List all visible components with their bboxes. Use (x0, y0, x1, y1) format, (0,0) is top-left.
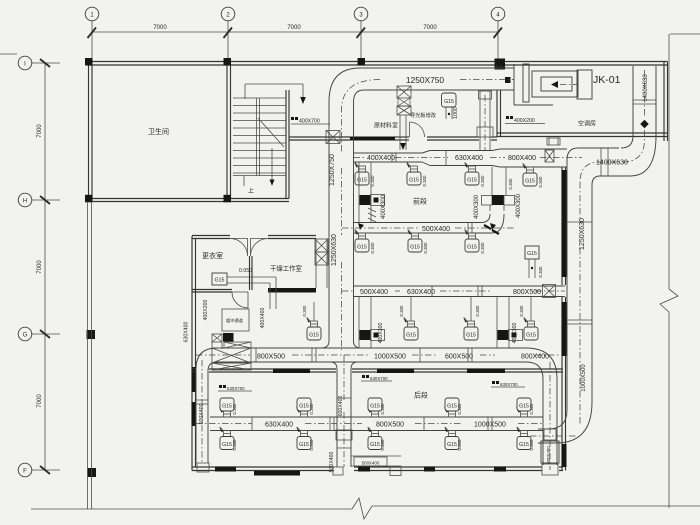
svg-text:0.300: 0.300 (370, 242, 375, 254)
svg-text:800X400: 800X400 (521, 354, 549, 361)
svg-text:后段: 后段 (414, 391, 428, 400)
svg-text:400X300: 400X300 (381, 194, 387, 219)
svg-text:0.300: 0.300 (302, 305, 307, 317)
svg-text:7000: 7000 (287, 25, 301, 31)
svg-text:1000X500: 1000X500 (474, 422, 506, 429)
svg-text:0.050: 0.050 (239, 268, 252, 274)
svg-text:400X300: 400X300 (474, 194, 480, 219)
svg-text:1000: 1000 (453, 107, 459, 119)
svg-text:500X400: 500X400 (546, 446, 551, 464)
svg-text:7000: 7000 (423, 25, 437, 31)
svg-text:630X400: 630X400 (407, 289, 435, 296)
svg-text:630X400: 630X400 (455, 155, 483, 162)
svg-text:500X400: 500X400 (360, 289, 388, 296)
svg-text:630X700: 630X700 (370, 376, 388, 381)
svg-text:7000: 7000 (37, 260, 43, 274)
svg-text:0.300: 0.300 (480, 242, 485, 254)
svg-text:0.300: 0.300 (423, 242, 428, 254)
svg-text:0.300: 0.300 (480, 175, 485, 187)
svg-text:7000: 7000 (37, 124, 43, 138)
svg-text:0.300: 0.300 (475, 305, 480, 317)
svg-text:0.300: 0.300 (232, 439, 237, 451)
svg-text:0.300: 0.300 (457, 403, 462, 415)
svg-text:JK-01: JK-01 (593, 74, 621, 86)
svg-text:400X300: 400X300 (516, 193, 522, 218)
svg-text:0.300: 0.300 (380, 403, 385, 415)
svg-text:0.300: 0.300 (519, 305, 524, 317)
svg-text:630X400: 630X400 (184, 322, 190, 343)
svg-text:1400X630: 1400X630 (596, 160, 628, 167)
svg-text:630X400: 630X400 (265, 422, 293, 429)
svg-text:800X500: 800X500 (376, 422, 404, 429)
svg-text:500X400: 500X400 (199, 404, 205, 425)
svg-text:G15: G15 (215, 278, 225, 284)
svg-text:更衣室: 更衣室 (202, 251, 223, 260)
svg-text:F: F (23, 469, 27, 475)
svg-text:缓冲通道: 缓冲通道 (226, 317, 244, 324)
svg-text:400X400: 400X400 (260, 308, 266, 329)
svg-text:7000: 7000 (37, 394, 43, 408)
svg-text:导光板增改: 导光板增改 (410, 111, 437, 119)
svg-text:0.300: 0.300 (232, 403, 237, 415)
svg-text:G15: G15 (444, 99, 454, 105)
svg-text:前段: 前段 (413, 197, 427, 206)
svg-text:0.300: 0.300 (508, 178, 513, 190)
svg-text:G15: G15 (527, 251, 537, 257)
svg-text:1000X500: 1000X500 (374, 354, 406, 361)
svg-text:400X300: 400X300 (512, 323, 518, 344)
svg-text:400X200: 400X200 (203, 300, 209, 321)
svg-text:H: H (23, 199, 27, 205)
svg-text:0.300: 0.300 (309, 403, 314, 415)
svg-text:800X500: 800X500 (257, 354, 285, 361)
svg-text:0.300: 0.300 (457, 439, 462, 451)
svg-text:1400X630: 1400X630 (643, 74, 649, 102)
svg-text:1000X500: 1000X500 (581, 364, 587, 392)
svg-text:500X400: 500X400 (422, 226, 450, 233)
svg-text:0.300: 0.300 (380, 439, 385, 451)
svg-text:400X300: 400X300 (378, 323, 384, 344)
svg-text:800X400: 800X400 (508, 155, 536, 162)
svg-text:原材料室: 原材料室 (374, 122, 398, 130)
svg-text:上: 上 (248, 187, 254, 195)
svg-text:800X500: 800X500 (513, 289, 541, 296)
svg-text:干燥工作室: 干燥工作室 (270, 264, 303, 273)
svg-text:1250X750: 1250X750 (406, 75, 445, 85)
svg-text:500X400: 500X400 (362, 461, 380, 466)
svg-text:400X400: 400X400 (367, 155, 395, 162)
svg-text:0.300: 0.300 (309, 439, 314, 451)
svg-text:0.300: 0.300 (529, 439, 534, 451)
svg-text:1250X630: 1250X630 (331, 234, 338, 266)
svg-text:500X400: 500X400 (329, 452, 335, 473)
svg-text:卫生间: 卫生间 (148, 127, 169, 136)
svg-text:630X700: 630X700 (227, 386, 245, 391)
svg-text:0.300: 0.300 (538, 176, 543, 188)
svg-text:空调房: 空调房 (578, 120, 596, 128)
svg-text:1250X630: 1250X630 (579, 218, 586, 250)
svg-text:7000: 7000 (153, 25, 167, 31)
svg-text:G: G (23, 333, 28, 339)
svg-text:0.300: 0.300 (422, 175, 427, 187)
svg-text:630X700: 630X700 (500, 382, 518, 387)
svg-text:0.300: 0.300 (538, 266, 543, 278)
svg-text:1250X750: 1250X750 (329, 154, 336, 186)
svg-text:600X500: 600X500 (445, 354, 473, 361)
svg-text:0.300: 0.300 (529, 403, 534, 415)
svg-text:0.300: 0.300 (399, 305, 404, 317)
svg-text:600X400: 600X400 (338, 396, 344, 417)
